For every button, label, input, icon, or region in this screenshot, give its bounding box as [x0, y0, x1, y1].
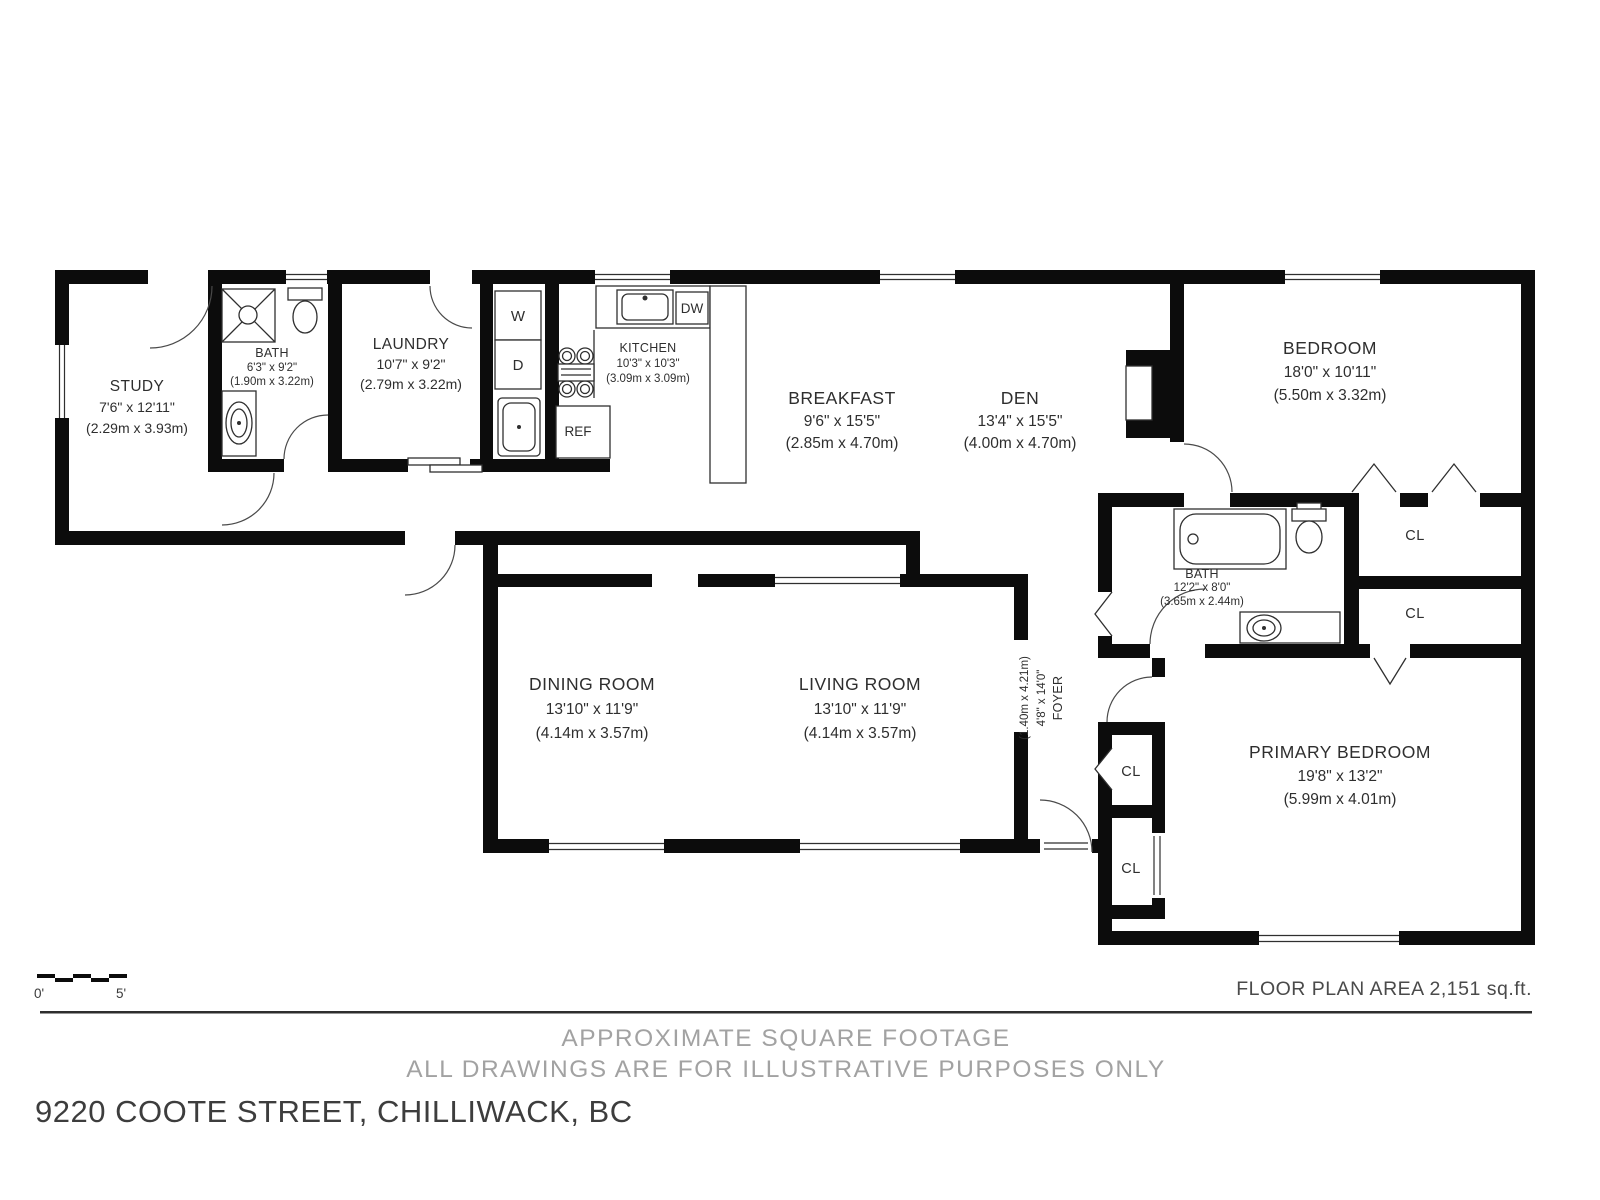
door-arc-laundry	[430, 286, 472, 328]
svg-text:19'8" x 13'2": 19'8" x 13'2"	[1297, 768, 1382, 785]
svg-text:(2.79m x 3.22m): (2.79m x 3.22m)	[360, 376, 462, 392]
closet-label: CL	[1121, 861, 1141, 877]
svg-text:BEDROOM: BEDROOM	[1283, 338, 1377, 358]
room-label-study: STUDY 7'6" x 12'11" (2.29m x 3.93m)	[86, 378, 188, 436]
door-arc-study-exterior	[150, 286, 212, 348]
svg-text:9'6" x 15'5": 9'6" x 15'5"	[804, 413, 880, 430]
room-label-living: LIVING ROOM 13'10" x 11'9" (4.14m x 3.57…	[799, 674, 921, 742]
door-chevron-bath-hall	[1095, 592, 1112, 636]
window	[286, 270, 327, 284]
svg-text:BATH: BATH	[1185, 567, 1219, 581]
room-label-dining: DINING ROOM 13'10" x 11'9" (4.14m x 3.57…	[529, 674, 655, 742]
svg-text:12'2" x 8'0": 12'2" x 8'0"	[1174, 582, 1231, 594]
room-label-foyer: FOYER 4'8" x 14'0" (1.40m x 4.21m)	[1019, 656, 1065, 740]
kitchen-peninsula	[710, 286, 746, 483]
svg-text:KITCHEN: KITCHEN	[620, 341, 677, 355]
svg-text:LAUNDRY: LAUNDRY	[373, 336, 450, 353]
closet-door-chevron	[1432, 464, 1476, 492]
svg-text:(3.65m x 2.44m): (3.65m x 2.44m)	[1160, 596, 1244, 608]
room-label-bath1: BATH 6'3" x 9'2" (1.90m x 3.22m)	[230, 346, 314, 388]
room-label-primary-bedroom: PRIMARY BEDROOM 19'8" x 13'2" (5.99m x 4…	[1249, 742, 1431, 808]
entry-door-sill	[1044, 843, 1088, 849]
svg-text:(5.50m x 3.32m): (5.50m x 3.32m)	[1274, 387, 1387, 404]
stove-fixture	[558, 330, 594, 398]
svg-text:6'3" x 9'2": 6'3" x 9'2"	[247, 362, 297, 374]
svg-text:(4.14m x 3.57m): (4.14m x 3.57m)	[536, 725, 649, 742]
room-label-den: DEN 13'4" x 15'5" (4.00m x 4.70m)	[964, 388, 1077, 452]
vanity-sink-fixture	[1240, 612, 1340, 643]
closet-label: CL	[1405, 528, 1425, 544]
window	[55, 345, 69, 418]
window	[800, 839, 960, 853]
svg-text:DEN: DEN	[1001, 388, 1039, 408]
shower-fixture	[222, 289, 275, 342]
svg-text:18'0" x 10'11": 18'0" x 10'11"	[1284, 364, 1376, 381]
svg-text:(1.40m x 4.21m): (1.40m x 4.21m)	[1019, 656, 1031, 740]
dryer-label: D	[513, 357, 524, 374]
door-arc-bath	[284, 415, 328, 459]
door-arc-study-hall	[222, 473, 274, 525]
floor-plan-canvas: STUDY 7'6" x 12'11" (2.29m x 3.93m) BATH…	[0, 0, 1600, 1200]
washer-label: W	[511, 308, 526, 325]
svg-text:BREAKFAST: BREAKFAST	[788, 388, 896, 408]
svg-text:13'4" x 15'5": 13'4" x 15'5"	[977, 413, 1062, 430]
svg-text:13'10" x 11'9": 13'10" x 11'9"	[546, 701, 638, 718]
den-niche	[1126, 366, 1152, 420]
svg-text:(2.29m x 3.93m): (2.29m x 3.93m)	[86, 420, 188, 436]
svg-text:(5.99m x 4.01m): (5.99m x 4.01m)	[1284, 791, 1397, 808]
toilet-fixture	[1292, 503, 1326, 553]
svg-text:(1.90m x 3.22m): (1.90m x 3.22m)	[230, 376, 314, 388]
room-label-bath2: BATH 12'2" x 8'0" (3.65m x 2.44m)	[1160, 567, 1244, 608]
window	[1259, 931, 1399, 945]
room-label-breakfast: BREAKFAST 9'6" x 15'5" (2.85m x 4.70m)	[786, 388, 899, 452]
disclaimer-line-2: ALL DRAWINGS ARE FOR ILLUSTRATIVE PURPOS…	[406, 1056, 1165, 1083]
scale-start-label: 0'	[34, 986, 44, 1001]
svg-text:BATH: BATH	[255, 346, 289, 360]
svg-text:13'10" x 11'9": 13'10" x 11'9"	[814, 701, 906, 718]
door-arc-hallway	[405, 545, 455, 595]
floor-plan-area-label: FLOOR PLAN AREA 2,151 sq.ft.	[1236, 978, 1532, 1000]
svg-text:LIVING ROOM: LIVING ROOM	[799, 674, 921, 694]
door-arc-bedroom	[1184, 444, 1232, 492]
closet-label: CL	[1405, 606, 1425, 622]
door-arc-primary-bedroom	[1107, 677, 1152, 722]
svg-text:10'3" x 10'3": 10'3" x 10'3"	[616, 358, 679, 370]
window	[549, 839, 664, 853]
property-address: 9220 COOTE STREET, CHILLIWACK, BC	[35, 1094, 633, 1129]
bathtub-fixture	[1174, 509, 1286, 569]
closet-door-chevron	[1352, 464, 1396, 492]
closet-door-chevron	[1374, 658, 1406, 684]
svg-text:FOYER: FOYER	[1051, 676, 1065, 721]
svg-text:DINING ROOM: DINING ROOM	[529, 674, 655, 694]
window	[775, 574, 900, 587]
refrigerator-label: REF	[565, 424, 592, 439]
utility-sink-fixture	[498, 398, 540, 456]
room-label-kitchen: KITCHEN 10'3" x 10'3" (3.09m x 3.09m)	[606, 341, 690, 385]
window	[595, 270, 670, 284]
dishwasher-label: DW	[681, 301, 704, 316]
pedestal-sink-fixture	[222, 391, 256, 456]
toilet-fixture	[288, 288, 322, 333]
scale-end-label: 5'	[116, 986, 126, 1001]
window	[880, 270, 955, 284]
closet-label: CL	[1121, 764, 1141, 780]
svg-text:(4.14m x 3.57m): (4.14m x 3.57m)	[804, 725, 917, 742]
footer-divider	[40, 1011, 1532, 1014]
door-arc-entry	[1040, 800, 1092, 852]
room-label-bedroom: BEDROOM 18'0" x 10'11" (5.50m x 3.32m)	[1274, 338, 1387, 404]
svg-text:(3.09m x 3.09m): (3.09m x 3.09m)	[606, 373, 690, 385]
svg-text:PRIMARY BEDROOM: PRIMARY BEDROOM	[1249, 742, 1431, 762]
svg-text:10'7" x 9'2": 10'7" x 9'2"	[377, 356, 446, 372]
sliding-door	[1150, 833, 1166, 898]
room-label-laundry: LAUNDRY 10'7" x 9'2" (2.79m x 3.22m)	[360, 336, 462, 392]
svg-text:(4.00m x 4.70m): (4.00m x 4.70m)	[964, 435, 1077, 452]
svg-text:7'6" x 12'11": 7'6" x 12'11"	[99, 399, 175, 415]
svg-text:(2.85m x 4.70m): (2.85m x 4.70m)	[786, 435, 899, 452]
disclaimer-line-1: APPROXIMATE SQUARE FOOTAGE	[561, 1025, 1010, 1052]
svg-text:4'8" x 14'0": 4'8" x 14'0"	[1036, 670, 1048, 727]
svg-text:STUDY: STUDY	[110, 378, 165, 395]
window	[1285, 270, 1380, 284]
scale-bar: 0' 5'	[34, 974, 127, 1001]
kitchen-sink-fixture	[617, 290, 673, 324]
